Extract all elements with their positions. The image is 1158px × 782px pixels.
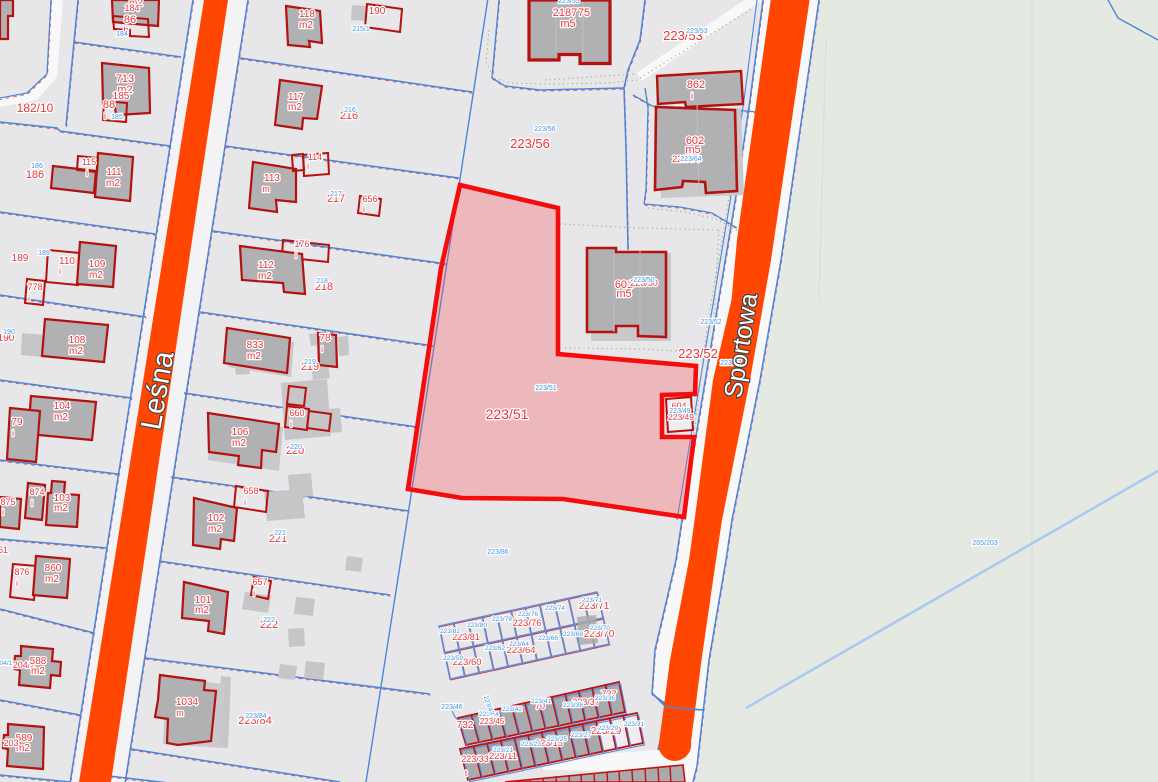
svg-text:m2: m2 (89, 270, 103, 281)
svg-text:223/51: 223/51 (535, 385, 557, 392)
svg-text:m2: m2 (258, 271, 272, 282)
svg-text:186: 186 (31, 163, 43, 170)
svg-text:61: 61 (0, 545, 8, 555)
svg-text:216: 216 (344, 107, 356, 114)
svg-text:862: 862 (687, 79, 705, 91)
svg-text:219: 219 (304, 359, 316, 366)
svg-text:m2: m2 (54, 412, 68, 423)
svg-text:223/45: 223/45 (480, 717, 505, 726)
svg-text:223/53: 223/53 (686, 28, 708, 35)
svg-text:876: 876 (14, 567, 29, 577)
svg-text:184: 184 (116, 31, 128, 38)
svg-text:i: i (16, 579, 18, 588)
svg-text:79: 79 (11, 417, 23, 428)
svg-text:223/74: 223/74 (545, 605, 565, 612)
svg-text:i: i (290, 420, 292, 429)
svg-text:m2: m2 (208, 524, 222, 535)
svg-text:75: 75 (578, 7, 590, 19)
svg-text:223/49: 223/49 (669, 408, 691, 415)
svg-text:223/78: 223/78 (492, 616, 512, 623)
svg-text:657: 657 (252, 577, 267, 587)
svg-text:190: 190 (369, 6, 386, 17)
svg-text:223/27: 223/27 (571, 732, 591, 739)
svg-text:656: 656 (362, 194, 377, 204)
svg-text:223/55: 223/55 (558, 0, 580, 5)
svg-text:78: 78 (319, 333, 331, 344)
svg-text:223/82: 223/82 (440, 628, 460, 635)
svg-text:223/62: 223/62 (485, 645, 505, 652)
svg-text:88: 88 (103, 99, 115, 111)
svg-text:i: i (28, 294, 30, 303)
svg-text:i: i (31, 499, 33, 508)
svg-text:m2: m2 (45, 574, 59, 585)
svg-text:i: i (59, 267, 61, 276)
svg-text:106: 106 (232, 427, 249, 438)
svg-text:223/36: 223/36 (595, 695, 615, 702)
svg-text:i: i (2, 508, 4, 517)
svg-text:118: 118 (299, 9, 315, 20)
svg-text:186: 186 (26, 169, 44, 181)
svg-text:220: 220 (290, 444, 302, 451)
svg-text:658: 658 (243, 486, 258, 496)
svg-text:m2: m2 (299, 20, 313, 31)
svg-text:223/68: 223/68 (563, 631, 583, 638)
svg-text:223/42: 223/42 (502, 706, 522, 713)
svg-text:189: 189 (12, 253, 29, 264)
svg-text:223/33: 223/33 (461, 754, 489, 764)
svg-text:223/46: 223/46 (441, 704, 463, 711)
svg-text:m2: m2 (195, 605, 209, 616)
svg-text:m2: m2 (31, 666, 45, 677)
svg-text:i: i (295, 251, 297, 260)
svg-text:i: i (12, 429, 14, 438)
svg-text:223/59: 223/59 (443, 655, 463, 662)
svg-text:i: i (104, 111, 106, 121)
svg-text:223/29: 223/29 (598, 725, 618, 732)
svg-text:m: m (176, 708, 184, 718)
svg-text:m5: m5 (616, 288, 631, 300)
svg-text:223/80: 223/80 (467, 622, 487, 629)
svg-text:185: 185 (111, 114, 123, 121)
svg-text:223/31: 223/31 (624, 721, 644, 728)
svg-text:i: i (244, 498, 246, 507)
svg-text:m2: m2 (288, 102, 302, 113)
svg-text:223/52: 223/52 (700, 319, 722, 326)
svg-text:112: 112 (258, 260, 274, 271)
svg-text:215/1: 215/1 (352, 26, 370, 33)
svg-text:110: 110 (59, 256, 75, 267)
svg-text:223/66: 223/66 (538, 635, 558, 642)
svg-text:223/51: 223/51 (486, 406, 529, 422)
svg-text:223/41: 223/41 (531, 698, 551, 705)
svg-text:109: 109 (89, 259, 106, 270)
svg-text:223/71: 223/71 (582, 597, 602, 604)
svg-text:111: 111 (106, 167, 122, 178)
svg-text:221: 221 (274, 530, 286, 537)
svg-text:m2: m2 (54, 503, 68, 514)
svg-text:223/56: 223/56 (510, 136, 550, 151)
svg-text:m5: m5 (560, 18, 575, 30)
svg-text:113: 113 (264, 173, 280, 184)
svg-text:223/76: 223/76 (518, 611, 538, 618)
svg-text:218: 218 (316, 278, 328, 285)
svg-text:223/21: 223/21 (493, 747, 513, 754)
svg-text:m2: m2 (247, 351, 261, 362)
svg-text:i: i (691, 91, 693, 101)
svg-text:190: 190 (3, 329, 15, 336)
svg-text:m2: m2 (69, 346, 83, 357)
svg-text:223/84: 223/84 (245, 713, 267, 720)
svg-text:114: 114 (308, 152, 322, 162)
svg-text:265/203: 265/203 (972, 540, 997, 547)
svg-text:223/64: 223/64 (509, 641, 529, 648)
svg-text:875: 875 (0, 497, 15, 507)
svg-text:223/70: 223/70 (590, 625, 610, 632)
svg-text:223/25: 223/25 (547, 736, 567, 743)
svg-text:102: 102 (208, 513, 225, 524)
svg-text:223/38: 223/38 (563, 702, 583, 709)
svg-text:108: 108 (69, 335, 86, 346)
svg-text:m: m (262, 184, 270, 194)
svg-text:204/1: 204/1 (0, 660, 13, 667)
svg-text:223/23: 223/23 (521, 741, 541, 748)
svg-text:732: 732 (457, 720, 474, 731)
svg-text:860: 860 (45, 563, 62, 574)
svg-text:189: 189 (38, 250, 50, 257)
svg-text:i: i (363, 205, 365, 214)
svg-text:i: i (321, 345, 323, 354)
svg-text:i: i (307, 162, 309, 171)
svg-text:660: 660 (289, 408, 304, 418)
svg-text:217: 217 (330, 191, 342, 198)
svg-text:223/86: 223/86 (487, 549, 509, 556)
svg-text:223/52: 223/52 (678, 346, 718, 361)
svg-text:223/76: 223/76 (512, 618, 541, 629)
svg-text:104: 104 (54, 401, 71, 412)
svg-text:m2: m2 (232, 438, 246, 449)
svg-text:833: 833 (247, 340, 264, 351)
svg-text:182/10: 182/10 (17, 101, 54, 115)
svg-text:223/64: 223/64 (680, 156, 702, 163)
svg-text:184: 184 (124, 3, 139, 13)
svg-text:115: 115 (82, 157, 96, 167)
svg-text:i: i (86, 169, 88, 178)
svg-text:778: 778 (27, 282, 42, 292)
svg-text:223/56: 223/56 (534, 126, 556, 133)
svg-text:874: 874 (29, 487, 44, 497)
svg-text:222: 222 (263, 617, 275, 624)
svg-text:m2: m2 (106, 178, 120, 189)
svg-text:1034: 1034 (176, 697, 199, 708)
svg-text:176: 176 (294, 239, 309, 249)
svg-text:i: i (253, 589, 255, 598)
svg-text:203: 203 (3, 738, 18, 748)
svg-text:185: 185 (113, 91, 130, 102)
svg-text:223/50: 223/50 (633, 277, 655, 284)
